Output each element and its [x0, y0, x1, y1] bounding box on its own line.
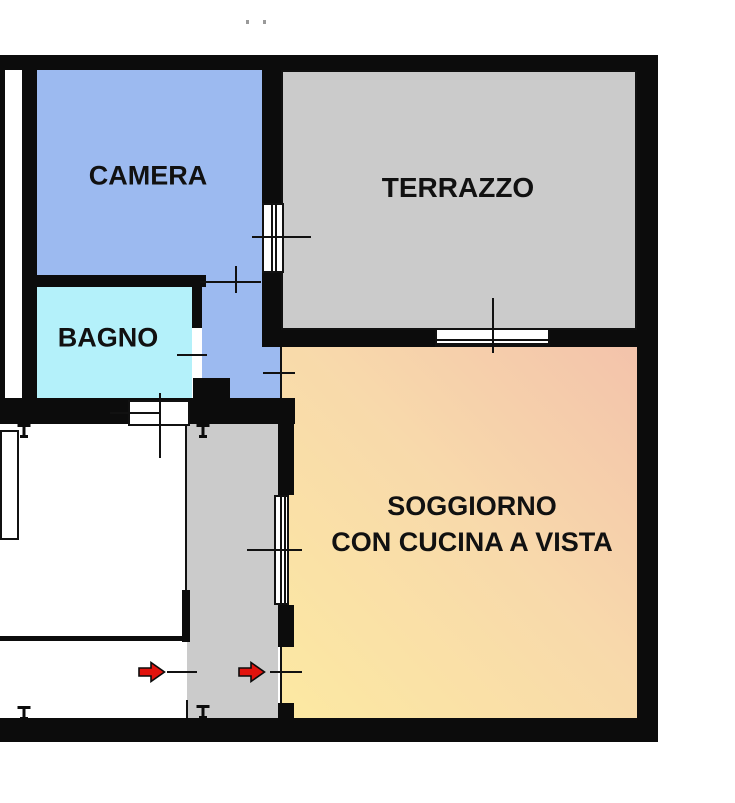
white-room-right-boundary [185, 424, 187, 592]
dim-line [492, 298, 494, 353]
dim-line [252, 236, 311, 238]
wall-bottom-outer [0, 718, 658, 742]
white-room-right-boundary-lower [186, 700, 188, 718]
wall-left-outer-sliver [0, 55, 5, 424]
tick-dot [263, 20, 266, 24]
wall-soggiorno-left-upper [278, 400, 294, 495]
dim-line [110, 412, 159, 414]
wall-camera-bottom [33, 275, 206, 287]
dim-line [263, 372, 295, 374]
doorstop-icon [196, 705, 210, 719]
label-camera: CAMERA [89, 161, 208, 192]
label-terrazzo: TERRAZZO [382, 172, 534, 204]
wall-white-room-inner [0, 636, 184, 641]
label-soggiorno-line1: SOGGIORNO [331, 488, 613, 524]
dim-line [235, 266, 237, 293]
label-soggiorno-line2: CON CUCINA A VISTA [331, 524, 613, 560]
wall-soggiorno-left-mid [278, 605, 294, 647]
wall-doorjamb-white-room [182, 590, 190, 642]
entrance-path-line [270, 671, 302, 673]
floor-plan: CAMERA TERRAZZO BAGNO SOGGIORNO CON CUCI… [0, 0, 735, 803]
entrance-arrow-icon [138, 661, 166, 683]
wall-corridor-step [193, 378, 230, 400]
label-soggiorno: SOGGIORNO CON CUCINA A VISTA [331, 488, 613, 560]
dim-line [177, 354, 207, 356]
wall-bagno-right [192, 278, 202, 328]
doorstop-icon [196, 424, 210, 438]
window-camera [262, 203, 284, 273]
entrance-path-line [167, 671, 197, 673]
wall-right-outer [637, 55, 658, 742]
label-bagno: BAGNO [58, 323, 159, 354]
dim-line [200, 281, 261, 283]
door-swing-line [159, 393, 161, 458]
doorstop-icon [17, 424, 31, 438]
entrance-arrow-icon [238, 661, 266, 683]
doorstop-icon [17, 706, 31, 720]
wall-left-inner [22, 70, 37, 424]
tick-dot [246, 20, 249, 24]
wall-top-outer [0, 55, 658, 70]
left-adjacent-structure [0, 430, 19, 540]
wall-soggiorno-left-lower [278, 703, 294, 718]
dim-line [247, 549, 302, 551]
